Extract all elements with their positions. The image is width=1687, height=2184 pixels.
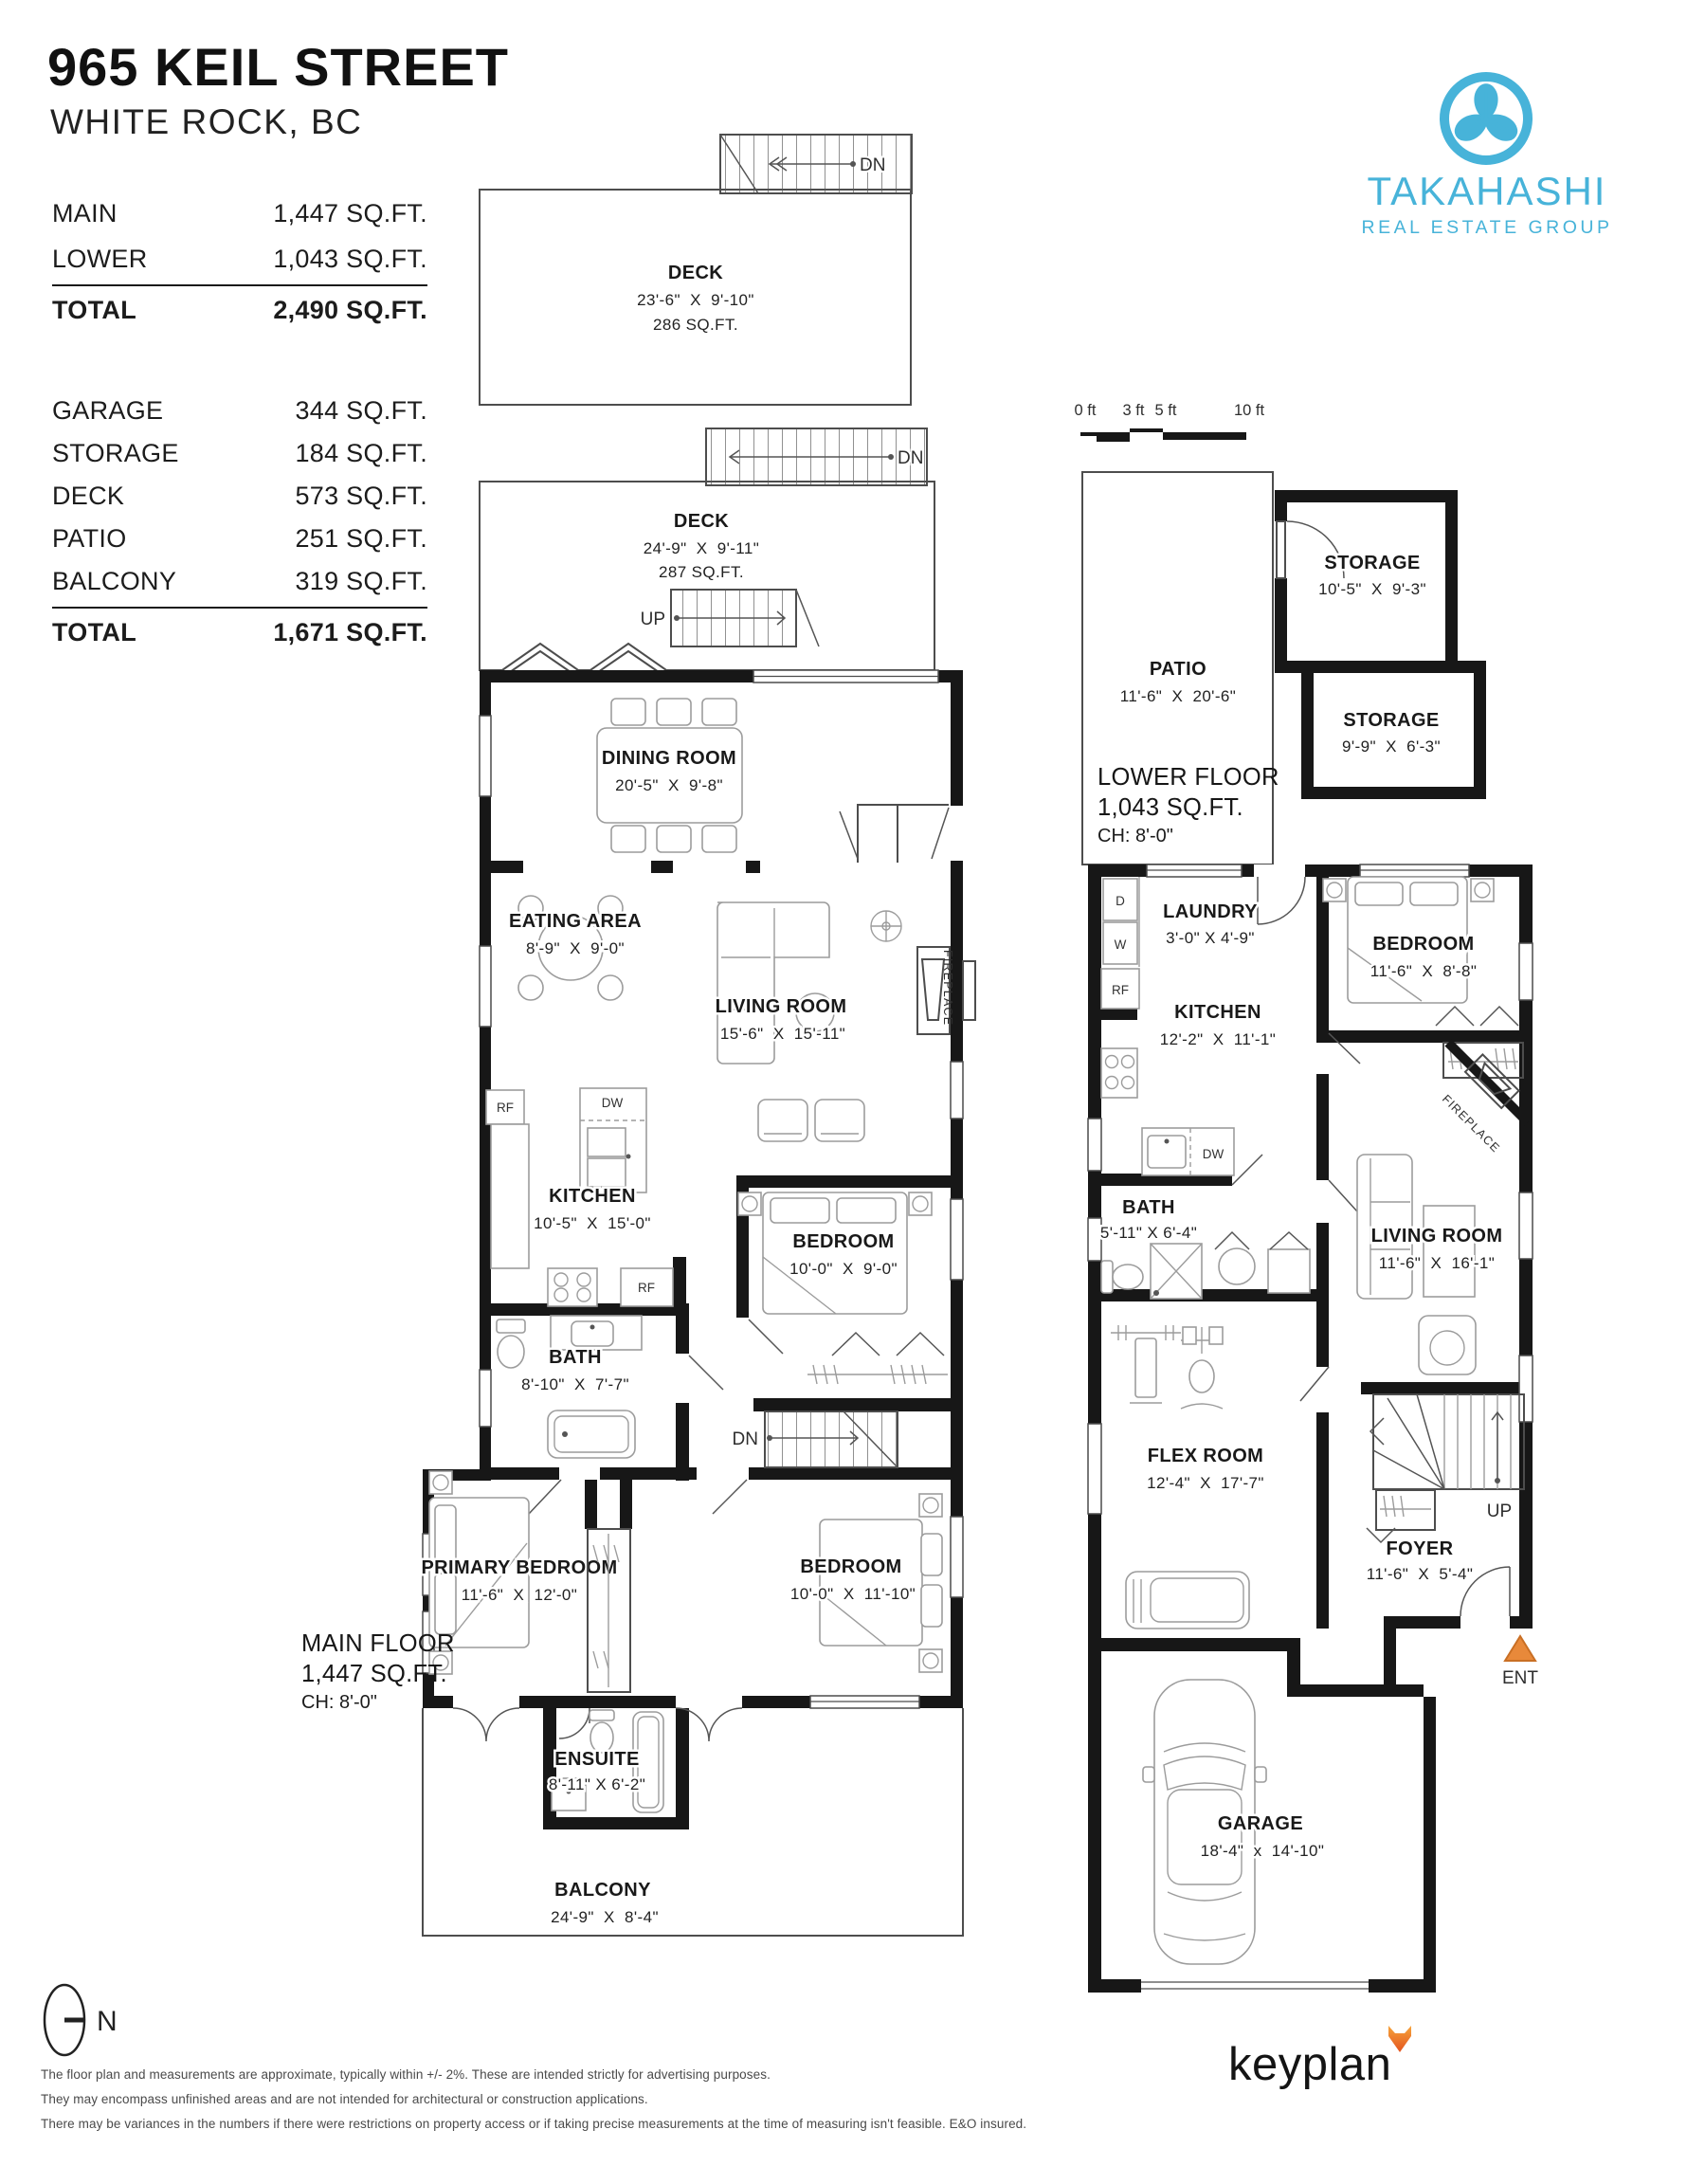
room-dims-flex: 12'-4" X 17'-7"	[1147, 1474, 1264, 1492]
scale-label: 5 ft	[1155, 402, 1177, 419]
floor-area: 1,043 SQ.FT.	[1097, 794, 1243, 821]
summary-label: BALCONY	[52, 567, 176, 596]
entry-marker: ENT	[1502, 1636, 1538, 1688]
room-area: 287 SQ.FT.	[659, 563, 744, 581]
page-title: 965 KEIL STREET	[47, 36, 509, 98]
armchair-icons	[758, 1100, 864, 1141]
room-label: DECK	[668, 263, 723, 283]
stairs-up-label: UP	[641, 610, 665, 629]
room-label-living: LIVING ROOM	[716, 996, 847, 1017]
room-label-bedroom-lower: BEDROOM	[1372, 934, 1474, 955]
lower-floor-plan: 0 ft 3 ft 5 ft 10 ft PATIO 11'-6" X 20'-…	[1043, 393, 1630, 2005]
fireplace-label: FIREPLACE	[941, 950, 954, 1026]
disclaimer-line: There may be variances in the numbers if…	[41, 2112, 1083, 2137]
room-dims-dining: 20'-5" X 9'-8"	[615, 776, 723, 794]
room-dims-bedroom-lower: 11'-6" X 8'-8"	[1370, 962, 1478, 980]
dryer-label: D	[1116, 894, 1125, 908]
disclaimer-line: They may encompass unfinished areas and …	[41, 2087, 1083, 2112]
room-dims-garage: 18'-4" x 14'-10"	[1201, 1842, 1325, 1860]
summary-label: GARAGE	[52, 396, 163, 426]
room-label-bath-lower: BATH	[1122, 1197, 1175, 1218]
room-dims-laundry: 3'-0" X 4'-9"	[1166, 929, 1255, 947]
floor-area: 1,447 SQ.FT.	[301, 1661, 447, 1687]
dishwasher-label: DW	[602, 1096, 624, 1110]
room-dims-storage2: 9'-9" X 6'-3"	[1342, 737, 1441, 755]
fridge-label: RF	[1112, 983, 1129, 997]
floor-ceiling-height: CH: 8'-0"	[1097, 826, 1173, 846]
room-label-bedroom: BEDROOM	[792, 1231, 894, 1252]
room-dims-bedroom2: 10'-0" X 11'-10"	[790, 1585, 916, 1603]
brand-flower-icon	[1434, 66, 1538, 171]
room-label-kitchen: KITCHEN	[549, 1186, 636, 1207]
summary-label: LOWER	[52, 245, 148, 274]
stairs-dn-label: DN	[898, 448, 923, 468]
room-label-garage: GARAGE	[1218, 1813, 1303, 1834]
room-dims-kitchen2: 12'-2" X 11'-1"	[1160, 1030, 1276, 1048]
pantry-closet	[840, 805, 949, 863]
room-dims-foyer: 11'-6" X 5'-4"	[1367, 1565, 1474, 1583]
floor-ceiling-height: CH: 8'-0"	[301, 1692, 377, 1713]
room-dims-eating: 8'-9" X 9'-0"	[526, 939, 625, 957]
room-label-balcony: BALCONY	[554, 1880, 651, 1901]
bedroom-closet	[588, 1529, 630, 1692]
room-dims: 23'-6" X 9'-10"	[637, 291, 754, 309]
room-label-bedroom2: BEDROOM	[800, 1556, 901, 1577]
washer-label: W	[1115, 937, 1127, 952]
ceiling-fan-icon	[871, 911, 901, 941]
keyplan-wordmark: keyplan	[1228, 2039, 1391, 2090]
dishwasher-label: DW	[1203, 1147, 1224, 1161]
summary-label: DECK	[52, 482, 124, 511]
fireplace-main: FIREPLACE	[917, 947, 975, 1034]
room-dims-kitchen: 10'-5" X 15'-0"	[534, 1214, 651, 1232]
room-label-storage1: STORAGE	[1324, 553, 1420, 573]
scale-label: 0 ft	[1075, 402, 1097, 419]
dining-table-icon	[597, 699, 742, 852]
room-dims-bedroom: 10'-0" X 9'-0"	[789, 1260, 898, 1278]
fireplace-label: FIREPLACE	[1440, 1092, 1503, 1156]
deck-lower: DN DECK 24'-9" X 9'-11" 287 SQ.FT. UP	[480, 428, 934, 670]
stairs-down: DN	[733, 1411, 898, 1467]
stairs-up: UP	[1367, 1394, 1524, 1542]
room-label-flex: FLEX ROOM	[1148, 1446, 1264, 1466]
brand-tagline: REAL ESTATE GROUP	[1334, 217, 1640, 239]
fridge-label: RF	[497, 1101, 514, 1115]
room-dims-storage1: 10'-5" X 9'-3"	[1318, 580, 1426, 598]
stairs-up-label: UP	[1487, 1501, 1512, 1521]
summary-label: TOTAL	[52, 296, 136, 325]
fridge-label: RF	[638, 1281, 655, 1295]
bed-icon	[820, 1494, 942, 1672]
room-dims-patio: 11'-6" X 20'-6"	[1120, 687, 1236, 705]
summary-label: STORAGE	[52, 439, 179, 468]
room-dims-ensuite: 8'-11" X 6'-2"	[549, 1775, 645, 1793]
room-dims: 24'-9" X 9'-11"	[644, 539, 759, 557]
room-label-foyer: FOYER	[1387, 1538, 1454, 1559]
disclaimer: The floor plan and measurements are appr…	[41, 2063, 1083, 2137]
room-dims-primary: 11'-6" X 12'-0"	[462, 1586, 577, 1604]
north-arrow: N	[28, 1976, 152, 2071]
room-label-laundry: LAUNDRY	[1163, 901, 1258, 922]
bath-fixtures	[1101, 1232, 1310, 1299]
bed-icon	[738, 1192, 932, 1314]
room-dims-living: 15'-6" X 15'-11"	[720, 1025, 845, 1043]
scale-label: 3 ft	[1123, 402, 1145, 419]
summary-label: TOTAL	[52, 618, 136, 647]
stairs-dn-label: DN	[733, 1429, 758, 1449]
scale-bar: 0 ft 3 ft 5 ft 10 ft	[1075, 402, 1265, 442]
keyplan-fox-icon	[1388, 2025, 1412, 2053]
deck-upper: DN DECK 23'-6" X 9'-10" 286 SQ.FT.	[480, 135, 912, 405]
floor-title: LOWER FLOOR	[1097, 764, 1279, 791]
room-dims-balcony: 24'-9" X 8'-4"	[551, 1908, 659, 1926]
room-label-kitchen2: KITCHEN	[1174, 1002, 1261, 1023]
balcony-outline	[423, 1708, 963, 1936]
room-label-living-lower: LIVING ROOM	[1371, 1226, 1503, 1247]
room-label-ensuite: ENSUITE	[554, 1749, 639, 1770]
floor-title: MAIN FLOOR	[301, 1630, 455, 1657]
room-dims-bath-lower: 5'-11" X 6'-4"	[1100, 1224, 1197, 1242]
room-label-eating: EATING AREA	[509, 911, 642, 932]
disclaimer-line: The floor plan and measurements are appr…	[41, 2063, 1083, 2087]
room-label: DECK	[674, 511, 729, 532]
room-label-dining: DINING ROOM	[602, 748, 736, 769]
scale-label: 10 ft	[1234, 402, 1265, 419]
room-dims-bath: 8'-10" X 7'-7"	[521, 1375, 629, 1393]
main-floor-plan: DN DECK 23'-6" X 9'-10" 286 SQ.FT. DN DE…	[284, 123, 986, 1953]
entry-label: ENT	[1502, 1668, 1538, 1688]
room-label-storage2: STORAGE	[1343, 710, 1439, 731]
keyplan-logo: keyplan	[1228, 2038, 1391, 2091]
summary-label: MAIN	[52, 199, 118, 228]
summary-label: PATIO	[52, 524, 127, 554]
room-label-patio: PATIO	[1150, 659, 1206, 680]
hall-closet	[807, 1333, 948, 1384]
north-label: N	[97, 2006, 118, 2037]
room-dims-living-lower: 11'-6" X 16'-1"	[1379, 1254, 1495, 1272]
brand-name: TAKAHASHI	[1334, 169, 1640, 214]
room-area: 286 SQ.FT.	[653, 316, 738, 334]
stairs-dn-label: DN	[860, 155, 885, 175]
room-label-bath: BATH	[549, 1347, 602, 1368]
